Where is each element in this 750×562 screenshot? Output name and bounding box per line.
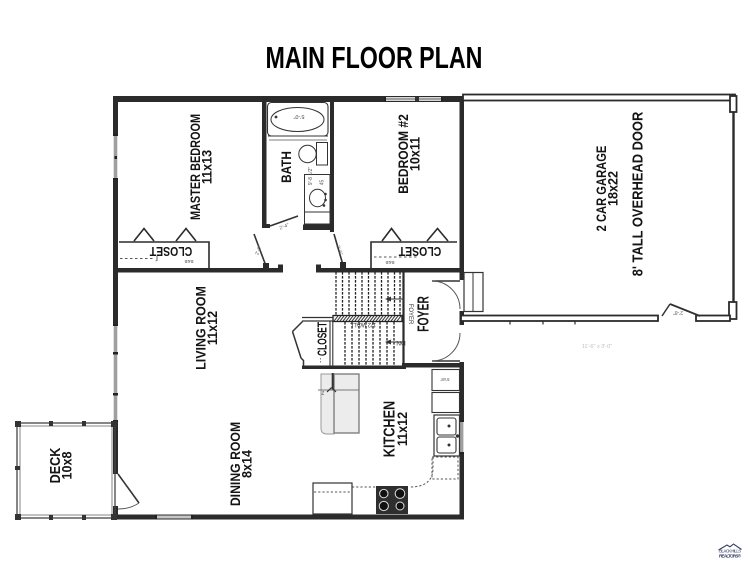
svg-text:BATH: BATH: [278, 151, 294, 183]
svg-text:10x11: 10x11: [407, 136, 423, 171]
svg-text:REALTORS®: REALTORS®: [719, 553, 742, 559]
svg-text:2': 2': [321, 389, 325, 395]
svg-text:FOYER: FOYER: [407, 304, 413, 325]
svg-text:↓: ↓: [155, 259, 157, 264]
svg-text:5'x8': 5'x8': [440, 377, 449, 382]
svg-text:B&B: B&B: [385, 260, 394, 265]
svg-text:FOYER: FOYER: [414, 296, 432, 332]
svg-text:10x8: 10x8: [59, 452, 75, 480]
svg-text:8' TALL OVERHEAD DOOR: 8' TALL OVERHEAD DOOR: [630, 112, 646, 277]
svg-text:MAIN FLOOR PLAN: MAIN FLOOR PLAN: [266, 40, 483, 75]
svg-text:1/2 WALL: 1/2 WALL: [349, 321, 376, 327]
svg-text:45: 45: [320, 180, 326, 186]
svg-text:CLOSET: CLOSET: [150, 244, 193, 257]
svg-text:5'-0": 5'-0": [293, 113, 304, 119]
svg-text:11x12: 11x12: [205, 311, 221, 345]
svg-text:11x13: 11x13: [199, 150, 215, 184]
svg-text:8x14: 8x14: [239, 449, 255, 478]
svg-text:9'-8 1/2": 9'-8 1/2": [308, 167, 314, 186]
svg-text:2'-8": 2'-8": [673, 309, 683, 315]
svg-text:11x12: 11x12: [394, 412, 410, 446]
svg-text:CLOSET: CLOSET: [316, 322, 330, 356]
svg-text:11'-6" x 3'-0": 11'-6" x 3'-0": [582, 344, 612, 350]
svg-text:18x22: 18x22: [605, 171, 621, 206]
svg-text:B&B: B&B: [184, 259, 193, 264]
svg-text:CLOSET: CLOSET: [399, 244, 442, 257]
